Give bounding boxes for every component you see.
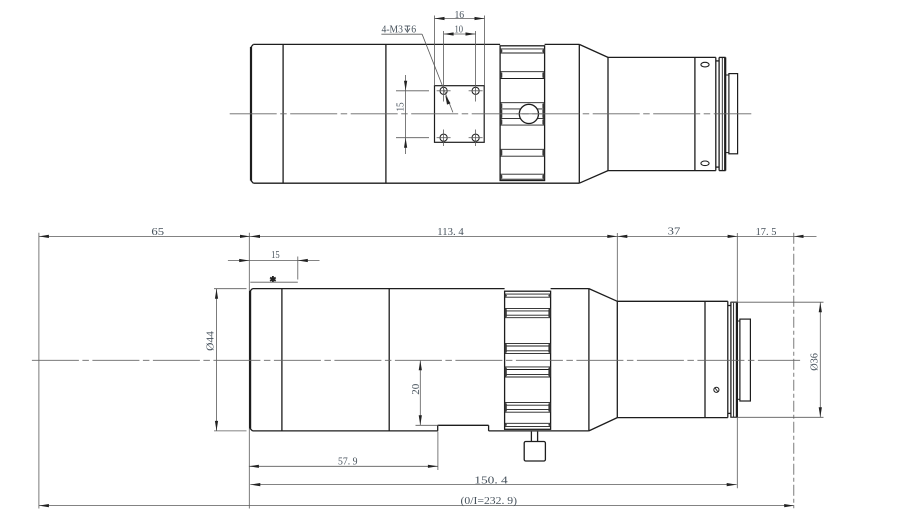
- svg-text:15: 15: [396, 102, 407, 111]
- svg-text:150. 4: 150. 4: [474, 476, 508, 487]
- svg-text:15: 15: [271, 250, 280, 261]
- svg-text:Ø44: Ø44: [205, 331, 216, 351]
- svg-text:(0/I=232. 9): (0/I=232. 9): [461, 496, 518, 507]
- svg-text:6: 6: [411, 24, 416, 35]
- svg-text:57. 9: 57. 9: [338, 457, 358, 468]
- svg-text:Ø36: Ø36: [809, 353, 820, 371]
- svg-text:20: 20: [411, 384, 422, 395]
- svg-text:10: 10: [455, 24, 464, 35]
- svg-text:17. 5: 17. 5: [756, 227, 777, 238]
- svg-text:16: 16: [454, 10, 464, 21]
- svg-text:37: 37: [668, 227, 681, 238]
- svg-text:65: 65: [151, 227, 164, 238]
- svg-text:4-M3: 4-M3: [382, 24, 404, 35]
- svg-text:113. 4: 113. 4: [437, 227, 463, 238]
